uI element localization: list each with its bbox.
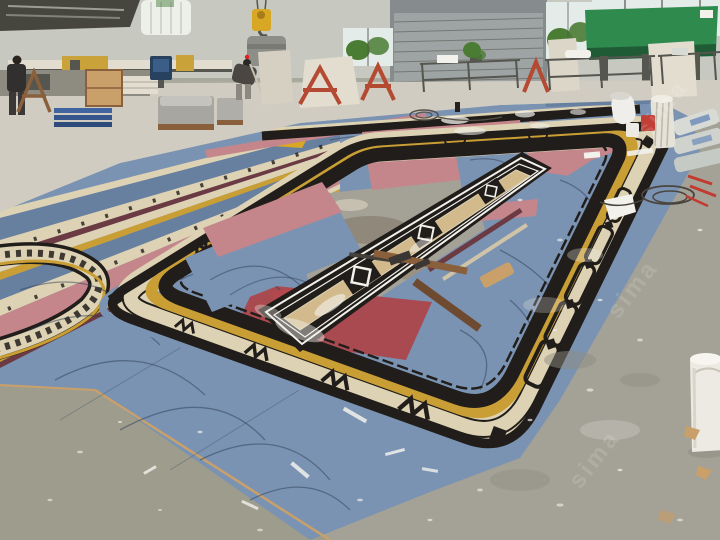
table-item — [565, 50, 591, 58]
table-item — [437, 55, 458, 63]
water-storage-tank — [141, 0, 191, 35]
shrink-wrapped-pallet — [158, 96, 243, 130]
machine-label — [700, 10, 713, 18]
band-reflection — [454, 127, 486, 135]
window-reflection — [515, 111, 535, 118]
window-reflection — [570, 109, 586, 115]
workshop-scene: sima sima sima — [0, 0, 720, 540]
table-item — [672, 48, 688, 55]
band-reflection — [530, 123, 550, 129]
large-white-bucket — [688, 353, 720, 458]
blue-pallet-stack — [54, 108, 112, 127]
wooden-crate — [86, 70, 122, 106]
indicator-light — [245, 55, 249, 59]
glue-bottle — [455, 102, 460, 112]
workshop-photo: Marble inlay workshop: large decorative … — [0, 0, 720, 540]
